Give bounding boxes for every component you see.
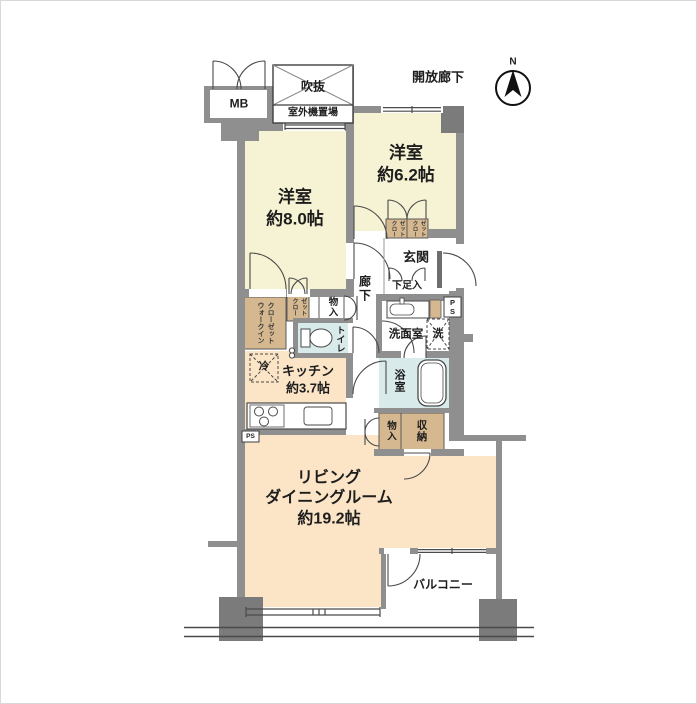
washroom-door-leaf [430, 300, 441, 318]
label-walk-in-closet: ウォークイン クローゼット [255, 302, 275, 344]
label-shoe-box: 下足入 [392, 281, 422, 294]
label-compass-n: N [509, 57, 516, 70]
kitchen-counter [247, 403, 346, 429]
compass-icon [496, 70, 530, 105]
label-void: 吹抜 [301, 79, 325, 94]
label-living-dining: リビング ダイニングルーム 約19.2帖 [265, 468, 393, 529]
living-area-right [379, 456, 496, 548]
label-pipe-space-kitchen: PS [246, 432, 255, 440]
label-closet-bedroom1: クロー ゼット [289, 298, 306, 316]
floor-plan-drawing [1, 1, 697, 704]
label-toilet: トイレ [335, 326, 348, 353]
floor-plan-page: 開放廊下 N MB 吹抜 室外機置場 洋室 約8.0帖 洋室 約6.2帖 玄関 … [0, 0, 697, 704]
label-storage-upper: 物入 [325, 297, 339, 318]
toilet-icon [301, 329, 332, 347]
label-outdoor-unit: 室外機置場 [288, 108, 338, 121]
washbasin-icon [387, 298, 429, 318]
label-storage-lower: 物入 [383, 421, 397, 442]
label-kitchen: キッチン 約3.7帖 [282, 363, 334, 396]
door-pivot-icon [289, 348, 294, 358]
label-bedroom2: 洋室 約6.2帖 [377, 142, 435, 186]
label-open-corridor: 開放廊下 [412, 70, 464, 87]
label-washer: 洗 [433, 327, 444, 341]
label-balcony: バルコニー [413, 577, 473, 592]
label-closet-bedroom2-left: クロー ゼット [389, 220, 405, 237]
label-washroom: 洗面室 [389, 328, 424, 343]
label-meter-box: MB [230, 96, 249, 111]
sink-icon [304, 407, 332, 425]
label-closet-bedroom2-right: クロー ゼット [410, 220, 426, 237]
label-pipe-space-entry: P S [450, 298, 455, 316]
label-bathroom: 浴室 [391, 369, 407, 393]
label-refrigerator: 冷 [259, 360, 270, 373]
label-corridor: 廊下 [357, 275, 374, 303]
label-entrance: 玄関 [403, 250, 429, 267]
label-bedroom1: 洋室 約8.0帖 [266, 186, 324, 230]
bathtub-inner [421, 363, 443, 403]
entrance-door-leaf [437, 251, 442, 288]
label-storage-closet: 収納 [415, 420, 430, 443]
